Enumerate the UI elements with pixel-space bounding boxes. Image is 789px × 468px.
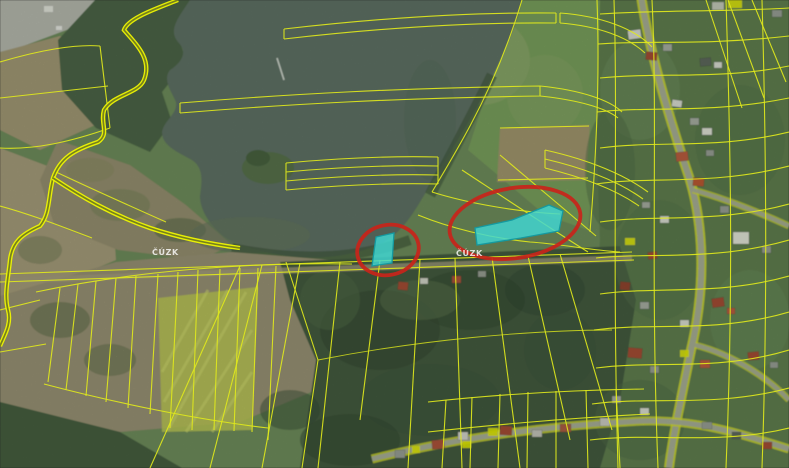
- cuzk-watermark-1: ČÚZK: [152, 246, 179, 257]
- cuzk-watermark-2: ČÚZK: [456, 247, 483, 258]
- cadastral-map[interactable]: ČÚZK ČÚZK: [0, 0, 789, 468]
- highlighted-parcel-small[interactable]: [372, 233, 394, 266]
